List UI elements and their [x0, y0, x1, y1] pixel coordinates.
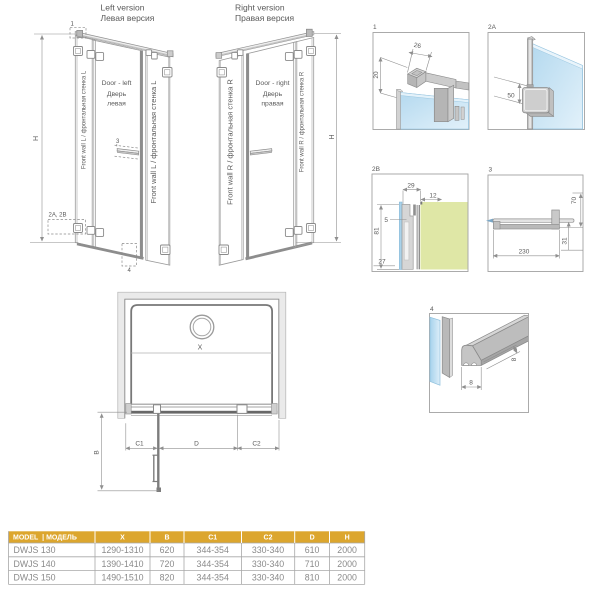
svg-text:H: H	[33, 136, 40, 141]
svg-text:820: 820	[160, 573, 175, 583]
svg-text:720: 720	[160, 559, 175, 569]
svg-text:Front wall L / фронтальная сте: Front wall L / фронтальная стенка L	[82, 70, 88, 169]
svg-text:344-354: 344-354	[197, 559, 229, 569]
svg-text:810: 810	[305, 573, 320, 583]
svg-text:C1: C1	[135, 441, 144, 448]
svg-text:710: 710	[305, 559, 320, 569]
svg-text:правая: правая	[261, 101, 284, 108]
svg-text:Дверь: Дверь	[263, 91, 283, 98]
svg-text:2B: 2B	[372, 166, 380, 173]
svg-text:DWJS 140: DWJS 140	[14, 559, 56, 569]
svg-text:8: 8	[469, 380, 473, 387]
svg-text:2A: 2A	[488, 24, 497, 31]
svg-text:1490-1510: 1490-1510	[101, 573, 143, 583]
svg-text:330-340: 330-340	[252, 573, 284, 583]
svg-text:50: 50	[507, 93, 515, 100]
svg-text:20: 20	[373, 71, 380, 79]
svg-text:27: 27	[378, 259, 386, 266]
svg-text:344-354: 344-354	[197, 573, 229, 583]
svg-text:4: 4	[128, 268, 132, 274]
svg-text:2000: 2000	[337, 545, 357, 555]
svg-text:DWJS 150: DWJS 150	[14, 573, 56, 583]
svg-text:Front wall R / фронтальная сте: Front wall R / фронтальная стенка R	[226, 79, 235, 205]
svg-text:344-354: 344-354	[197, 545, 229, 555]
svg-text:DWJS 130: DWJS 130	[14, 545, 56, 555]
svg-text:B: B	[94, 450, 101, 454]
svg-text:Door - right: Door - right	[256, 80, 290, 87]
svg-text:C1: C1	[208, 535, 217, 542]
svg-text:1390-1410: 1390-1410	[101, 559, 143, 569]
svg-text:230: 230	[519, 249, 530, 256]
svg-text:Right version: Right version	[235, 3, 285, 13]
svg-text:X: X	[198, 345, 203, 352]
svg-text:8: 8	[510, 358, 517, 362]
svg-text:X: X	[120, 535, 125, 542]
svg-text:2A, 2B: 2A, 2B	[49, 213, 67, 219]
svg-text:70: 70	[571, 197, 578, 205]
svg-text:Правая версия: Правая версия	[235, 13, 295, 23]
svg-text:29: 29	[407, 183, 415, 190]
svg-text:81: 81	[374, 227, 381, 235]
svg-text:4: 4	[430, 306, 434, 313]
svg-text:D: D	[310, 535, 315, 542]
svg-text:B: B	[164, 535, 169, 542]
svg-text:H: H	[329, 134, 336, 139]
svg-text:Front wall L / фронтальная сте: Front wall L / фронтальная стенка L	[149, 81, 158, 204]
svg-text:2000: 2000	[337, 573, 357, 583]
svg-text:12: 12	[429, 193, 437, 200]
svg-text:MODEL | МОДЕЛЬ: MODEL | МОДЕЛЬ	[13, 535, 77, 542]
svg-text:330-340: 330-340	[252, 545, 284, 555]
svg-text:2000: 2000	[337, 559, 357, 569]
svg-text:610: 610	[305, 545, 320, 555]
svg-text:Левая версия: Левая версия	[101, 13, 155, 23]
svg-text:3: 3	[489, 167, 493, 174]
svg-text:Left version: Left version	[101, 3, 145, 13]
svg-text:330-340: 330-340	[252, 559, 284, 569]
svg-text:1290-1310: 1290-1310	[101, 545, 143, 555]
svg-text:Door - left: Door - left	[102, 80, 132, 87]
svg-text:C2: C2	[264, 535, 273, 542]
svg-text:5: 5	[384, 217, 388, 224]
svg-text:D: D	[194, 441, 199, 448]
svg-text:1: 1	[373, 24, 377, 31]
svg-text:31: 31	[562, 237, 569, 245]
svg-text:Front wall R / фронтальная сте: Front wall R / фронтальная стенка R	[299, 71, 305, 172]
svg-text:Дверь: Дверь	[107, 91, 127, 98]
svg-text:левая: левая	[107, 101, 126, 108]
svg-text:620: 620	[160, 545, 175, 555]
svg-text:C2: C2	[252, 441, 261, 448]
svg-text:26: 26	[413, 42, 422, 50]
svg-text:H: H	[345, 535, 350, 542]
